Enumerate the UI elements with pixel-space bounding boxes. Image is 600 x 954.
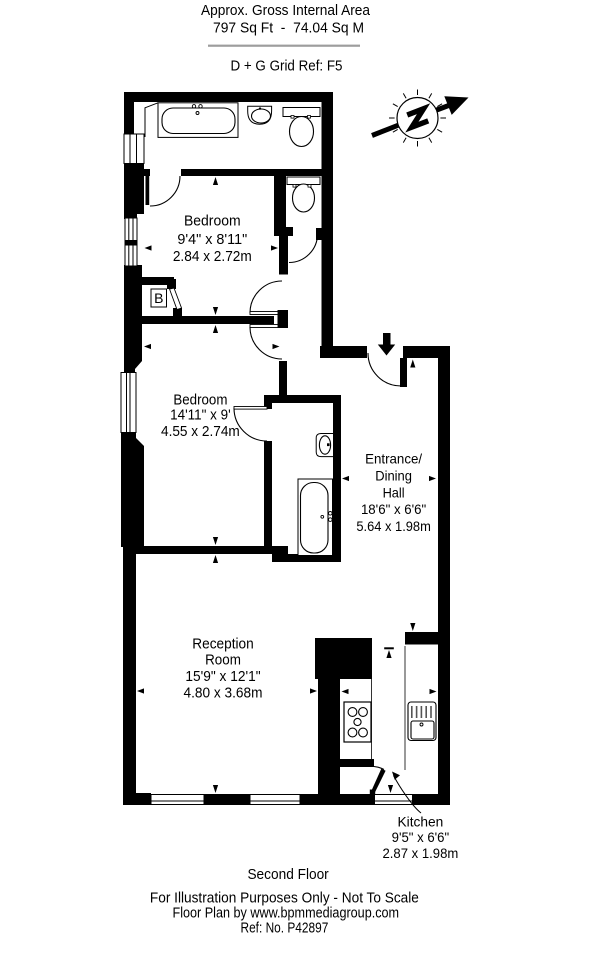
svg-text:4.80 x 3.68m: 4.80 x 3.68m	[184, 685, 263, 701]
svg-text:D + G Grid Ref: F5: D + G Grid Ref: F5	[231, 59, 343, 75]
svg-text:2.84 x 2.72m: 2.84 x 2.72m	[173, 249, 252, 265]
svg-text:5.64 x 1.98m: 5.64 x 1.98m	[356, 519, 431, 534]
svg-text:9'4" x 8'11": 9'4" x 8'11"	[177, 232, 247, 248]
svg-text:15'9" x 12'1": 15'9" x 12'1"	[185, 669, 260, 685]
svg-text:Room: Room	[205, 653, 241, 669]
svg-text:797 Sq Ft - 74.04 Sq M: 797 Sq Ft - 74.04 Sq M	[213, 21, 364, 37]
svg-text:Entrance/: Entrance/	[365, 452, 422, 467]
svg-text:4.55 x 2.74m: 4.55 x 2.74m	[161, 424, 240, 440]
svg-text:Ref: No. P42897: Ref: No. P42897	[241, 919, 329, 936]
svg-text:14'11" x 9': 14'11" x 9'	[170, 408, 231, 424]
svg-text:Bedroom: Bedroom	[173, 393, 227, 409]
svg-text:18'6" x 6'6": 18'6" x 6'6"	[361, 502, 426, 517]
svg-text:Kitchen: Kitchen	[398, 813, 444, 829]
svg-text:2.87 x 1.98m: 2.87 x 1.98m	[383, 845, 459, 861]
svg-text:Dining: Dining	[375, 469, 412, 484]
svg-text:Bedroom: Bedroom	[184, 214, 241, 230]
svg-text:9'5" x 6'6": 9'5" x 6'6"	[392, 829, 450, 845]
svg-text:Hall: Hall	[383, 486, 405, 501]
svg-text:B: B	[154, 290, 163, 306]
svg-text:Reception: Reception	[192, 637, 254, 653]
svg-text:Approx. Gross Internal Area: Approx. Gross Internal Area	[201, 3, 371, 19]
svg-text:Second Floor: Second Floor	[247, 867, 328, 883]
